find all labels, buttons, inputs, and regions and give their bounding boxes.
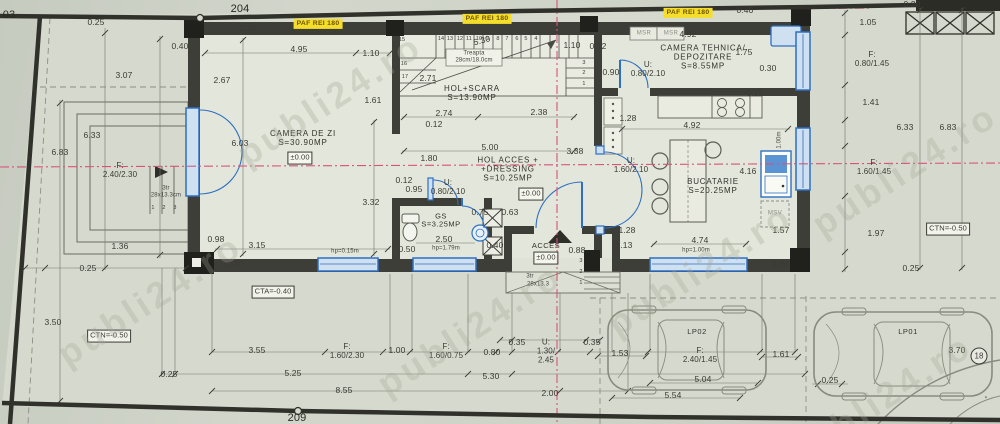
opening-size-label: F: 2.40/1.45: [683, 347, 717, 365]
dimension-label: 4.92: [680, 30, 697, 40]
stair-number: 2: [582, 70, 585, 76]
dimension-label: 0.95: [406, 185, 423, 195]
dimension-label: 0.12: [426, 120, 443, 130]
note-label: hp=0.15m: [331, 249, 359, 256]
note-label: *: [985, 397, 987, 404]
room-label: LP02: [687, 328, 707, 336]
dimension-label: 0.20: [904, 0, 921, 10]
stair-number: 3: [173, 205, 176, 211]
dimension-label: 1.36: [112, 242, 129, 252]
dimension-label: 0.75: [472, 208, 489, 218]
dimension-label: 5.04: [695, 375, 712, 385]
dimension-label: 1.13: [616, 241, 633, 251]
stair-number: 1: [151, 205, 154, 211]
dimension-label: 1.28: [619, 226, 636, 236]
dimension-label: 0.90: [603, 68, 620, 78]
dimension-label: 0.30: [760, 64, 777, 74]
dimension-label: 2.38: [531, 108, 548, 118]
stair-number: 2: [162, 205, 165, 211]
room-label: LP01: [898, 328, 918, 336]
stair-number: 14: [438, 36, 444, 42]
stair-number: 10: [476, 36, 482, 42]
stair-number: 12: [457, 36, 463, 42]
dimension-label: 3.55: [249, 346, 266, 356]
stair-number: 13: [447, 36, 453, 42]
survey-marker: 209: [288, 412, 307, 424]
dimension-label: 2.50: [436, 235, 453, 245]
stair-number: 9: [486, 36, 489, 42]
opening-size-label: U: 0.80/2.10: [631, 61, 665, 79]
dimension-label: 5.25: [285, 369, 302, 379]
dimension-label: 0.40: [737, 6, 754, 16]
watermark: publi24.ro: [600, 195, 800, 344]
equipment-label: MSR: [637, 31, 652, 38]
opening-size-label: U: 0.80/2.10: [431, 179, 465, 197]
dimension-label: 0.35: [584, 338, 601, 348]
room-label: GS S=3.25MP: [421, 213, 460, 230]
opening-size-label: U: 1.60/2.10: [614, 157, 648, 175]
stair-number: 2: [579, 269, 582, 275]
dimension-label: 2.71: [420, 74, 437, 84]
opening-size-label: F: 1.60/2.30: [330, 343, 364, 361]
dimension-label: 0.25: [161, 370, 178, 380]
stair-number: 1: [579, 280, 582, 286]
room-label: BUCATARIE S=20.25MP: [687, 178, 739, 196]
room-label: HOL+SCARA S=13.90MP: [444, 85, 500, 103]
survey-marker: 03: [3, 9, 15, 21]
dimension-label: 6.33: [84, 131, 101, 141]
dimension-label: 1.05: [860, 18, 877, 28]
dimension-label: 1.28: [620, 114, 637, 124]
watermark: publi24.ro: [370, 255, 570, 404]
dimension-label: 5.30: [483, 372, 500, 382]
dimension-label: 0.40: [172, 42, 189, 52]
dimension-label: 0.63: [502, 208, 519, 218]
dimension-label: 2.67: [214, 76, 231, 86]
dimension-label: 3.32: [363, 198, 380, 208]
dimension-label: 1.41: [863, 98, 880, 108]
dimension-label: 0.25: [822, 376, 839, 386]
watermark: publi24.ro: [780, 325, 980, 424]
dimension-label: 0.40: [240, 24, 257, 34]
dimension-label: 2.74: [436, 109, 453, 119]
fire-rating-label: PAF REI 180: [463, 14, 512, 24]
stair-number: 5: [524, 36, 527, 42]
dimension-label: 0.12: [590, 42, 607, 52]
dimension-label: 0.50: [399, 245, 416, 255]
dimension-label: 4.95: [291, 45, 308, 55]
dimension-label: 0.88: [569, 246, 586, 256]
watermark: publi24.ro: [50, 225, 250, 374]
opening-size-label: F: 0.80/1.45: [855, 51, 889, 69]
note-label: hp=1.79m: [432, 246, 460, 253]
dimension-label: 0.80: [484, 348, 501, 358]
stair-number: 6: [515, 36, 518, 42]
room-label: ACCES: [532, 242, 560, 250]
stair-number: 4: [534, 36, 537, 42]
level-annotation: ±0.00: [287, 152, 312, 165]
fire-rating-label: PAF REI 180: [664, 8, 713, 18]
opening-size-label: U: 1.30/ 2.45: [537, 339, 555, 366]
dimension-label: 5.54: [665, 391, 682, 401]
note-label: Treapta 28cm/18.0cm: [455, 50, 492, 63]
dimension-label: 8.55: [336, 386, 353, 396]
equipment-label: MSR: [664, 31, 679, 38]
dimension-label: 0.25: [88, 18, 105, 28]
dimension-label: 1.53: [612, 349, 629, 359]
dimension-label: 3.38: [567, 147, 584, 157]
dimension-label: 1.10: [564, 41, 581, 51]
room-label: CAMERA TEHNICA/ DEPOZITARE S=8.55MP: [660, 45, 745, 72]
stair-number: 1: [582, 81, 585, 87]
opening-size-label: F: 2.40/2.30: [103, 162, 137, 180]
dimension-label: 1.61: [773, 350, 790, 360]
dimension-label: 4.16: [740, 167, 757, 177]
dimension-label: 3.50: [45, 318, 62, 328]
room-label: HOL ACCES + +DRESSING S=10.25MP: [477, 157, 538, 184]
stair-number: 11: [466, 36, 472, 42]
dimension-label: 1.80: [421, 154, 438, 164]
dimension-label: 6.33: [897, 123, 914, 133]
labels-layer: 032042090.200.250.400.40PAF REI 180PAF R…: [0, 0, 1000, 424]
dimension-label: 1.75: [736, 48, 753, 58]
dimension-label: 5.00: [482, 143, 499, 153]
stair-number: 3: [579, 258, 582, 264]
floor-plan-page: 032042090.200.250.400.40PAF REI 180PAF R…: [0, 0, 1000, 424]
dimension-label: 0.40: [487, 241, 504, 251]
dimension-label: 0.40: [772, 260, 789, 270]
dimension-label: 4.92: [684, 121, 701, 131]
dimension-label: 0.25: [80, 264, 97, 274]
note-label: 1.00m: [777, 131, 784, 148]
stair-number: 7: [505, 36, 508, 42]
dimension-label: 3.07: [116, 71, 133, 81]
dimension-label: 0.12: [747, 89, 764, 99]
level-annotation: CTA=-0.40: [252, 286, 295, 299]
survey-marker: 204: [231, 3, 250, 15]
watermark: publi24.ro: [805, 95, 1000, 244]
dimension-label: 2.00: [542, 389, 559, 399]
watermark: publi24.ro: [230, 25, 430, 174]
level-annotation: ±0.00: [518, 188, 543, 201]
note-label: 3tr 28x13.3cm: [151, 185, 181, 198]
dimension-label: 6.83: [52, 148, 69, 158]
dimension-label: 3.15: [249, 241, 266, 251]
dimension-label: 1.97: [868, 229, 885, 239]
fire-rating-label: PAF REI 180: [294, 19, 343, 29]
dimension-label: 0.25: [903, 264, 920, 274]
stair-number: 8: [496, 36, 499, 42]
dimension-label: 0.35: [509, 338, 526, 348]
stair-number: 3: [582, 60, 585, 66]
level-annotation: CTN=-0.50: [926, 223, 970, 236]
